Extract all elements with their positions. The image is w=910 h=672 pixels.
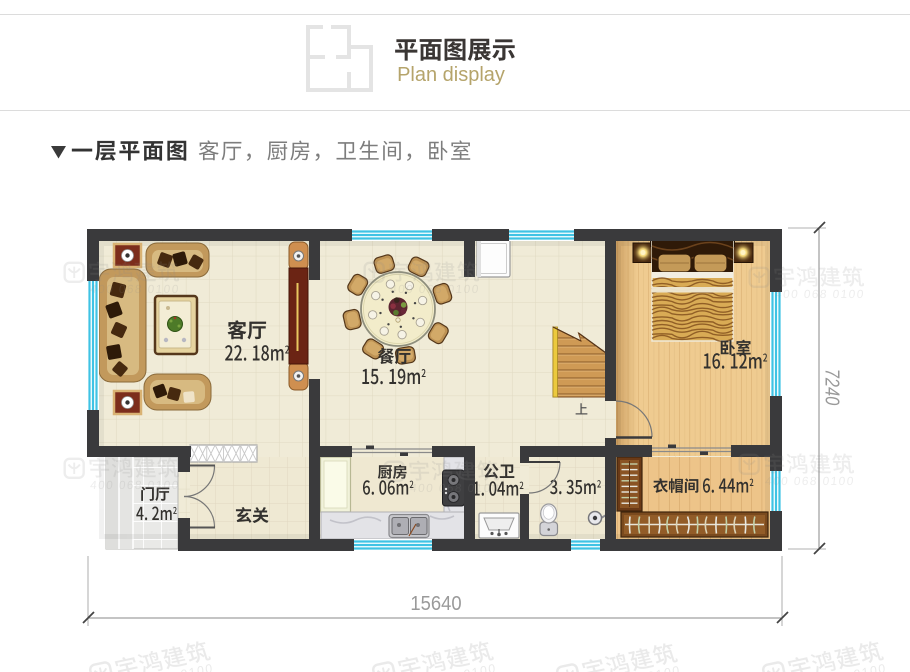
svg-text:400 068 0100: 400 068 0100 <box>409 481 500 495</box>
svg-text:400 068 0100: 400 068 0100 <box>389 282 480 296</box>
svg-text:400 068 0100: 400 068 0100 <box>89 478 180 492</box>
svg-text:400 068 0100: 400 068 0100 <box>764 474 855 488</box>
svg-text:400 068 0100: 400 068 0100 <box>89 282 180 296</box>
svg-text:Plan display: Plan display <box>397 64 505 86</box>
svg-text:7240: 7240 <box>821 369 844 405</box>
svg-text:400 068 0100: 400 068 0100 <box>774 287 865 301</box>
svg-text:15640: 15640 <box>410 593 461 615</box>
